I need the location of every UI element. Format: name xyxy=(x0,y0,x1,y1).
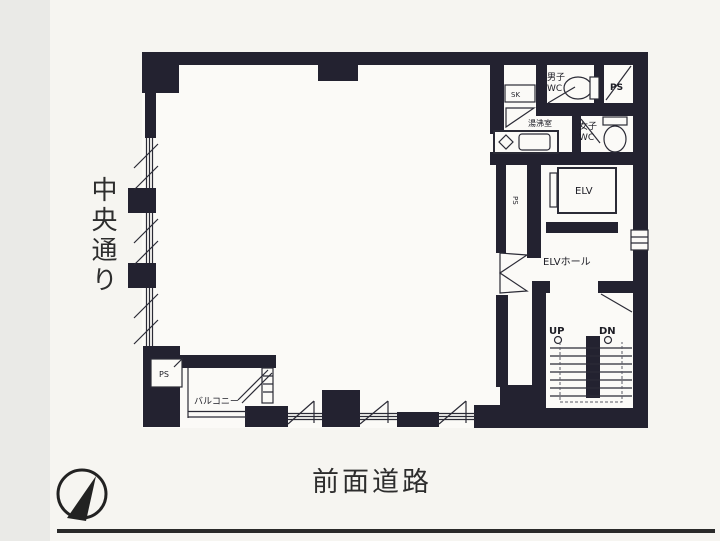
label-sk: SK xyxy=(511,91,520,99)
label-balcony: バルコニー xyxy=(194,396,239,407)
label-stairs-up: UP xyxy=(549,326,564,337)
floorplan-page: 男子 WC PS SK 湯沸室 女子 WC ELV ELVホール PS UP D… xyxy=(0,0,720,541)
hall-window xyxy=(631,230,648,250)
label-womens-wc-line1: 女子 xyxy=(579,120,597,132)
label-mens-wc-line1: 男子 xyxy=(547,72,565,83)
label-kitchenette: 湯沸室 xyxy=(528,118,552,128)
label-ps-shaft: PS xyxy=(511,196,519,205)
north-compass-icon xyxy=(58,470,106,521)
label-elevator-hall: ELVホール xyxy=(543,256,591,268)
street-name-left: 中央通り xyxy=(84,176,121,296)
label-stairs-down: DN xyxy=(599,326,616,337)
street-name-bottom: 前面道路 xyxy=(312,460,432,499)
toilet-icon xyxy=(564,77,599,99)
label-ps-balcony: PS xyxy=(159,370,169,379)
toilet-icon xyxy=(603,117,627,152)
label-ps-top: PS xyxy=(610,83,623,93)
label-elevator: ELV xyxy=(575,186,593,197)
sink-icon xyxy=(494,131,558,153)
label-mens-wc-line2: WC xyxy=(547,84,562,94)
bottom-divider-line xyxy=(57,529,715,533)
label-womens-wc-line2: WC xyxy=(579,133,594,143)
